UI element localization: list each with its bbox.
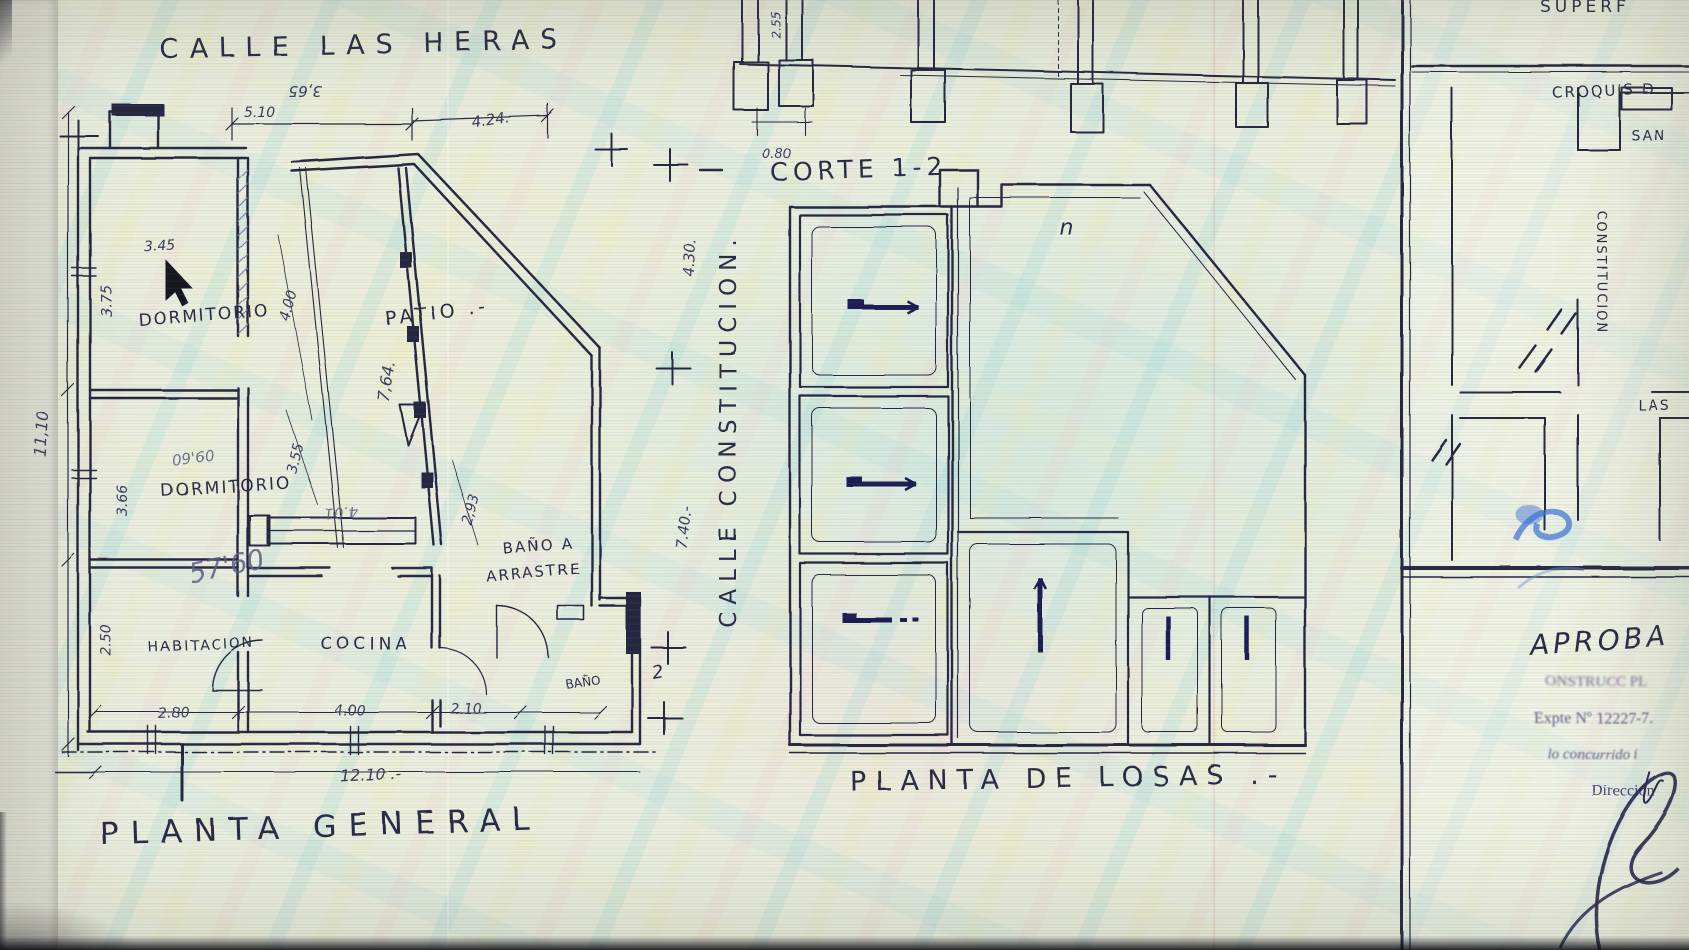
superf-label: SUPERF — [1540, 0, 1630, 17]
room-arrastre-1: BAÑO A — [502, 533, 574, 558]
slab-mark-n: n — [1060, 216, 1074, 241]
stamp-line-1: ONSTRUCC PL — [1546, 674, 1647, 690]
slab-plan: n PLANTA DE LOSAS .- — [790, 170, 1305, 798]
section-dim-top: 2.55 — [769, 11, 783, 38]
dim-width-d1: 3.45 — [144, 237, 176, 255]
room-cocina: COCINA — [320, 634, 410, 654]
dim-left-total: 11,10 — [31, 411, 53, 458]
dim-diag-c: 2,93 — [460, 493, 483, 527]
dim-top-total: 3,65 — [289, 82, 322, 100]
floor-plan: CALLE LAS HERAS 3,65 5.10 4.24. 3.45 3.7… — [31, 24, 700, 853]
dim-patio-len: 7,64. — [374, 360, 400, 403]
dim-left-c: 2.50 — [99, 625, 115, 656]
aprobado-label: APROBA — [1527, 619, 1671, 662]
dim-left-a: 3.75 — [99, 285, 115, 316]
dim-bottom-a: 2.80 — [158, 704, 190, 722]
room-banio: BAÑO — [564, 672, 601, 692]
croquis-street-constitucion: CONSTITUCION — [1593, 210, 1608, 333]
dim-diag-b: 3.55 — [285, 441, 307, 475]
room-dormitorio2: DORMITORIO — [160, 474, 293, 501]
dim-right-a: 4.30. — [680, 239, 699, 278]
croquis-street-san: SAN — [1632, 129, 1667, 145]
section-linework — [700, 0, 1395, 170]
photo-edge-bottom — [0, 936, 1689, 950]
room-dormitorio1: DORMITORIO — [138, 301, 271, 330]
dim-top-a: 5.10 — [244, 105, 275, 121]
street-right-label: CALLE CONSTITUCION. — [716, 232, 742, 627]
section-corte: 0.80 2.55 CORTE 1-2 — [700, 0, 1395, 187]
pencil-c: 4.01 — [324, 502, 359, 523]
dim-left-b: 3.66 — [115, 485, 131, 516]
blueprint-photo: CALLE LAS HERAS 3,65 5.10 4.24. 3.45 3.7… — [0, 0, 1689, 950]
street-top-label: CALLE LAS HERAS — [160, 24, 569, 66]
croquis-label: CROQUIS D — [1552, 80, 1656, 102]
dim-bottom-b: 4.00 — [334, 703, 365, 719]
slab-direction-arrows — [842, 301, 1247, 660]
stamp-expte: Expte Nº 12227-7. — [1534, 710, 1653, 727]
dim-bottom-total: 12.10 .- — [340, 764, 403, 785]
pencil-a: 09'60 — [171, 446, 215, 470]
mouse-cursor — [165, 258, 194, 307]
floor-plan-walls — [62, 104, 655, 800]
pencil-b: 57'60 — [187, 544, 268, 590]
room-patio: PATIO .- — [384, 296, 491, 331]
dim-top-b: 4.24. — [471, 109, 511, 132]
section-title: CORTE 1-2 — [769, 152, 947, 187]
dim-diag-a: 4.00 — [277, 288, 301, 322]
blueprint-drawing: CALLE LAS HERAS 3,65 5.10 4.24. 3.45 3.7… — [0, 0, 1689, 950]
floor-plan-title: PLANTA GENERAL — [99, 801, 542, 852]
banio-num: 2 — [650, 661, 665, 684]
slab-linework — [790, 170, 1305, 753]
photo-edge-top-left — [0, 0, 12, 72]
croquis-street-las: LAS — [1638, 398, 1671, 414]
stamp-line-3: lo concurrido i — [1548, 747, 1638, 763]
dim-right-b: 7.40.- — [673, 505, 695, 550]
blue-ink-smudge — [1516, 505, 1584, 588]
slab-title: PLANTA DE LOSAS .- — [850, 759, 1286, 798]
dim-bottom-c: 2.10 — [450, 701, 481, 717]
room-arrastre-2: ARRASTRE — [485, 559, 582, 585]
title-block: SUPERF CROQUIS D SAN CONSTITUCION LAS AP… — [1402, 0, 1689, 950]
